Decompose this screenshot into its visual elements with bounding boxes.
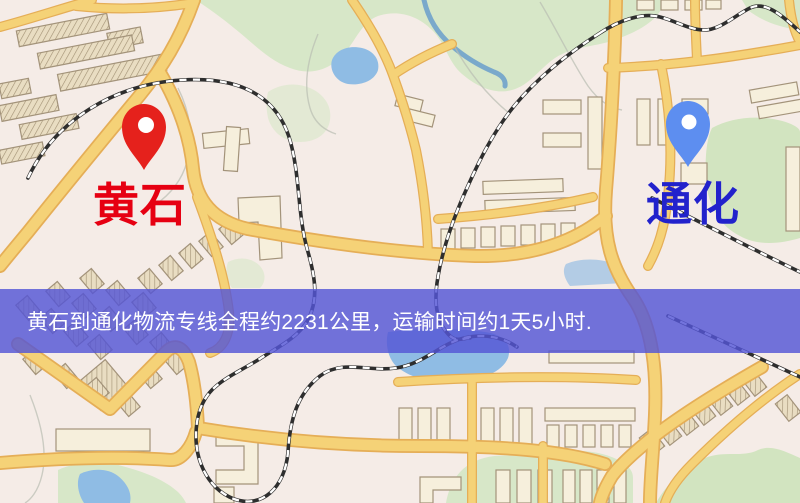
route-info-banner: 黄石到通化物流专线全程约2231公里，运输时间约1天5小时. bbox=[0, 289, 800, 353]
map-canvas bbox=[0, 0, 800, 503]
route-info-text: 黄石到通化物流专线全程约2231公里，运输时间约1天5小时. bbox=[0, 306, 592, 336]
map-screenshot: 黄石 通化 黄石到通化物流专线全程约2231公里，运输时间约1天5小时. bbox=[0, 0, 800, 503]
